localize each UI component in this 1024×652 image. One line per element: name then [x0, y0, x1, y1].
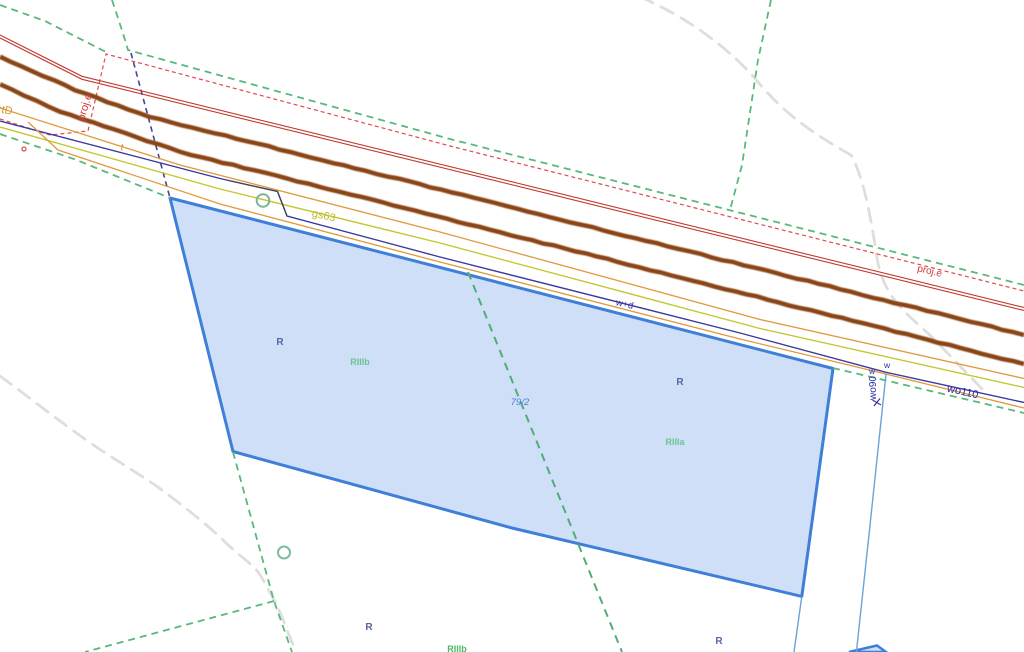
- svg-text:R: R: [276, 337, 284, 348]
- svg-text:RIIIb: RIIIb: [350, 357, 370, 367]
- svg-text:w: w: [868, 366, 876, 376]
- svg-text:R: R: [676, 377, 684, 388]
- svg-text:R: R: [715, 636, 723, 647]
- svg-text:RIIIb: RIIIb: [447, 644, 467, 652]
- svg-text:w: w: [883, 360, 891, 370]
- svg-text:R: R: [365, 622, 373, 633]
- svg-text:RIIIa: RIIIa: [665, 437, 685, 447]
- svg-text:wo90: wo90: [868, 376, 879, 401]
- svg-text:79/2: 79/2: [511, 397, 530, 408]
